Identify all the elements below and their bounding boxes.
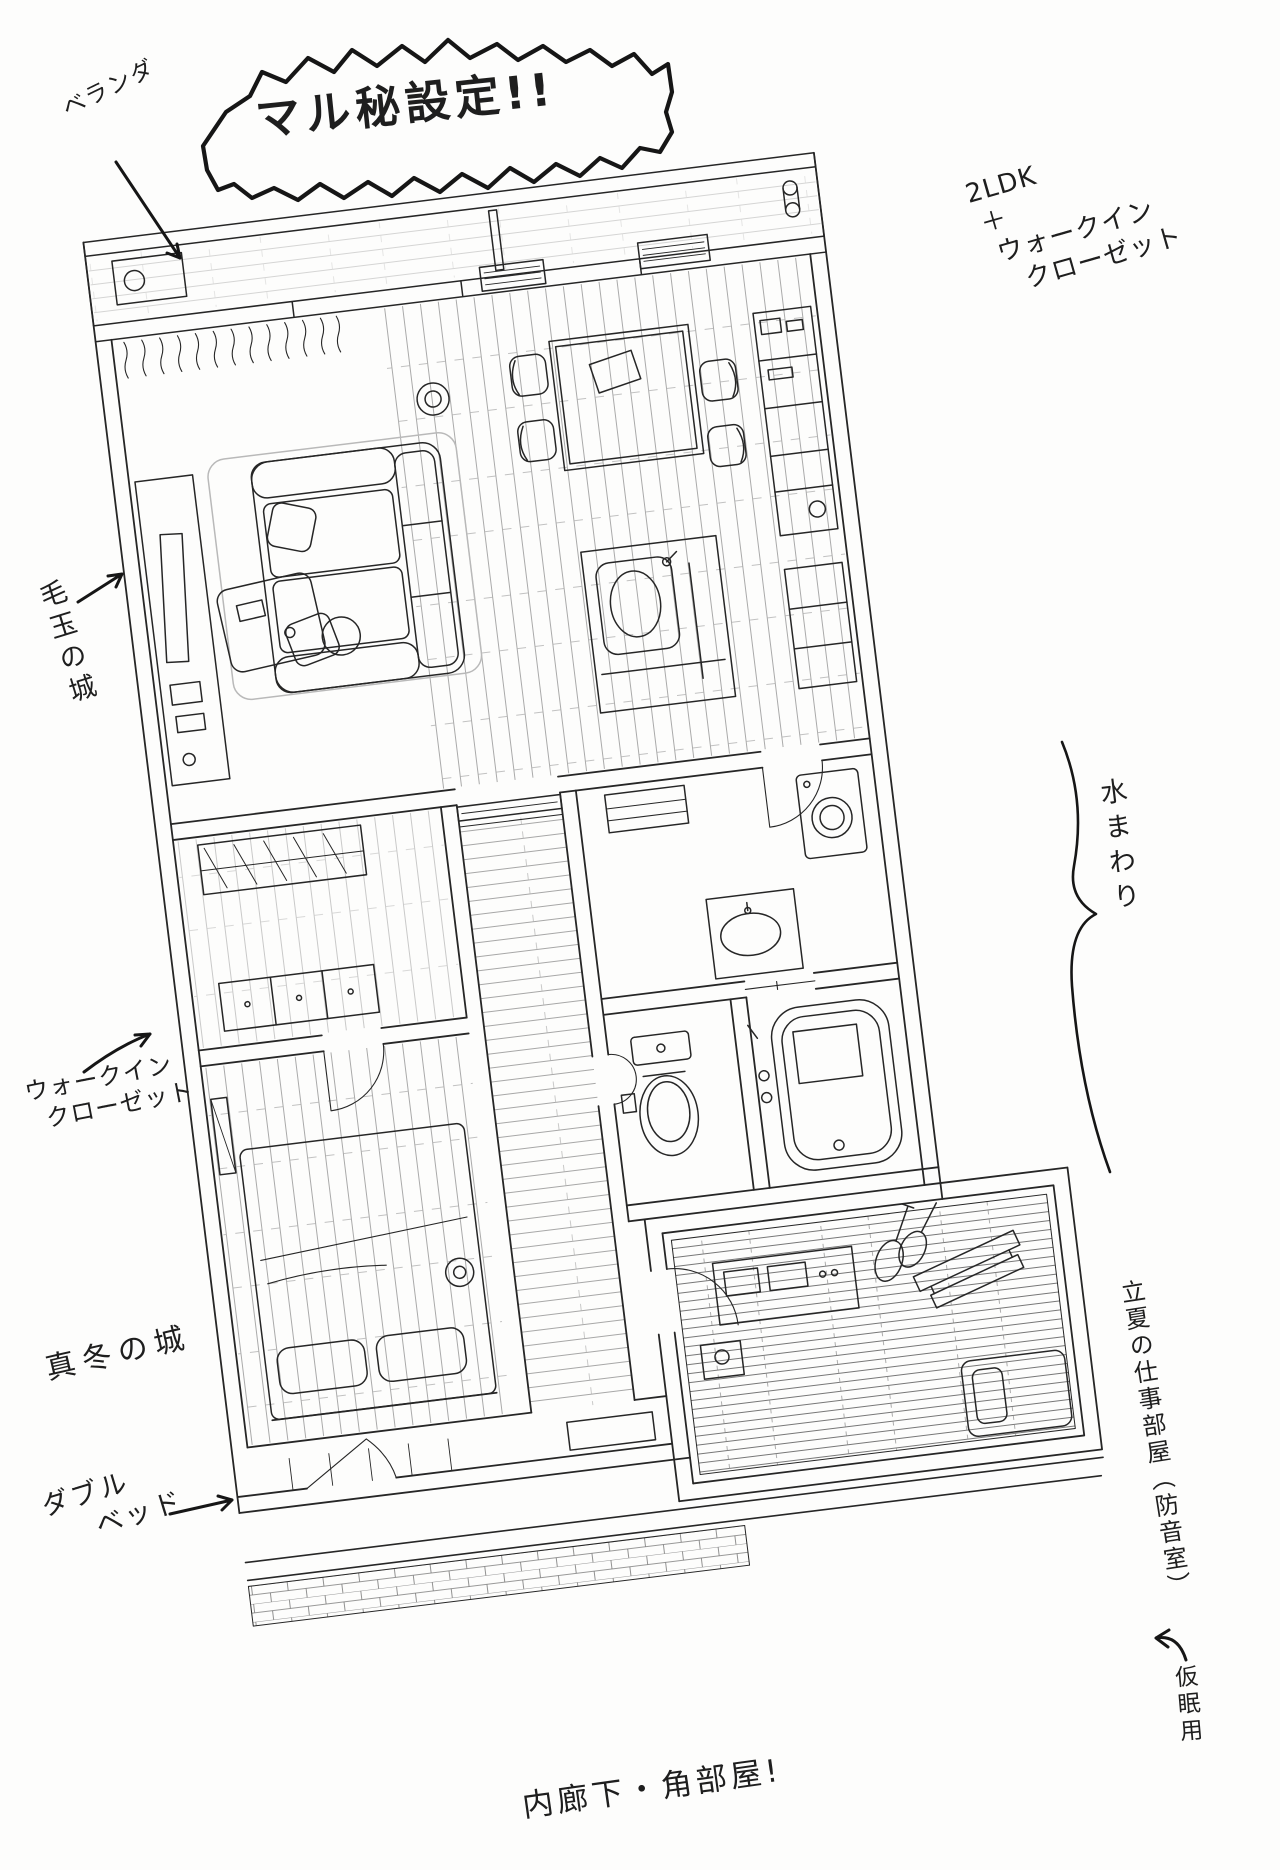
veranda-arrow — [116, 162, 180, 258]
nap-arrow — [1156, 1630, 1186, 1660]
kedama-arrow — [78, 574, 122, 602]
annotation-overlay — [0, 0, 1280, 1870]
